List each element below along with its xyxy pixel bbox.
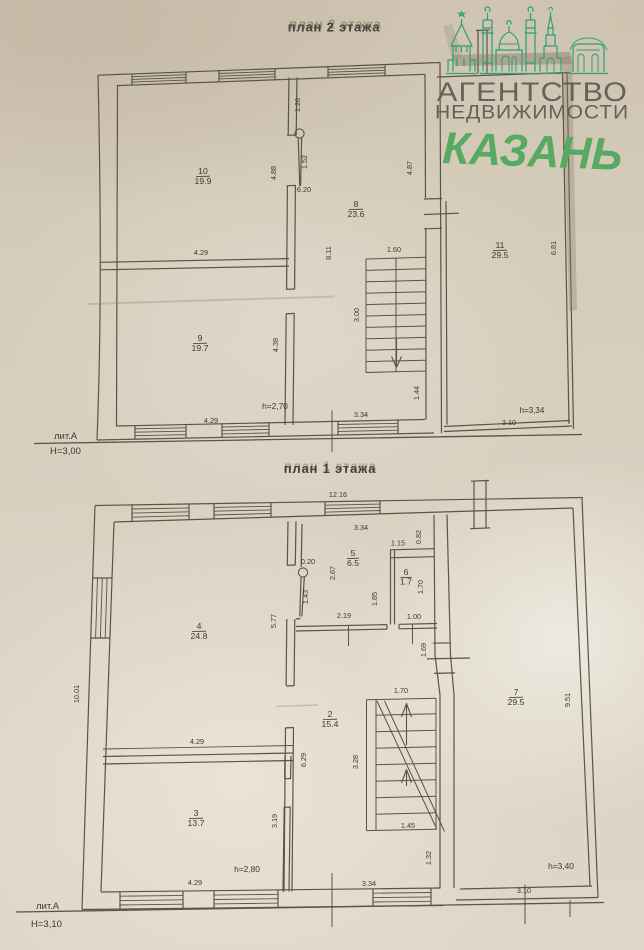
svg-text:h=3,34: h=3,34: [520, 406, 545, 415]
svg-text:5: 5: [351, 548, 356, 558]
svg-text:19.7: 19.7: [192, 343, 209, 353]
svg-text:0.82: 0.82: [414, 530, 423, 544]
svg-text:1.15: 1.15: [391, 539, 405, 548]
svg-text:3.34: 3.34: [362, 879, 376, 888]
svg-text:2.19: 2.19: [337, 611, 351, 620]
svg-text:лит.А: лит.А: [36, 901, 60, 912]
svg-text:4.29: 4.29: [188, 878, 202, 887]
svg-text:4.38: 4.38: [271, 338, 280, 352]
svg-text:1.69: 1.69: [419, 643, 428, 657]
svg-text:1.85: 1.85: [370, 592, 379, 606]
svg-text:4.87: 4.87: [405, 161, 414, 175]
svg-text:15.4: 15.4: [322, 719, 339, 729]
svg-text:1.52: 1.52: [300, 155, 309, 169]
svg-text:3.34: 3.34: [354, 410, 368, 419]
svg-text:3.00: 3.00: [352, 308, 361, 322]
svg-text:3.10: 3.10: [517, 886, 531, 895]
svg-text:4: 4: [197, 621, 202, 631]
svg-text:3: 3: [194, 808, 199, 818]
svg-text:4.29: 4.29: [190, 737, 204, 746]
svg-text:НЕДВИЖИМОСТИ: НЕДВИЖИМОСТИ: [435, 102, 629, 124]
svg-text:8: 8: [354, 199, 359, 209]
svg-text:h=2,70: h=2,70: [262, 401, 288, 411]
svg-text:4.88: 4.88: [269, 166, 278, 180]
svg-text:план 1 этажа: план 1 этажа: [284, 459, 376, 474]
svg-text:3.34: 3.34: [354, 523, 368, 532]
svg-text:29.5: 29.5: [508, 697, 525, 707]
svg-text:1.26: 1.26: [293, 98, 302, 112]
svg-text:8.11: 8.11: [324, 246, 333, 260]
svg-text:9.51: 9.51: [563, 693, 572, 707]
svg-text:2: 2: [328, 709, 333, 719]
svg-text:h=3,40: h=3,40: [548, 861, 574, 871]
svg-text:6.5: 6.5: [347, 558, 359, 568]
svg-text:1.7: 1.7: [400, 577, 412, 587]
svg-text:1.60: 1.60: [387, 245, 401, 254]
svg-text:6: 6: [404, 567, 409, 577]
svg-text:11: 11: [495, 240, 504, 250]
svg-text:13.7: 13.7: [188, 818, 205, 828]
svg-text:6.29: 6.29: [299, 753, 308, 767]
svg-text:3.10: 3.10: [502, 418, 516, 427]
svg-text:h=2,80: h=2,80: [234, 864, 260, 874]
svg-text:3.19: 3.19: [270, 814, 279, 828]
svg-text:план 2 этажа: план 2 этажа: [289, 17, 381, 32]
svg-text:4.29: 4.29: [194, 248, 208, 257]
svg-text:10: 10: [198, 166, 208, 176]
svg-text:лит.А: лит.А: [54, 431, 78, 442]
svg-text:10.01: 10.01: [72, 685, 81, 703]
svg-text:23.6: 23.6: [348, 209, 365, 219]
svg-text:1.00: 1.00: [407, 612, 421, 621]
svg-text:4.29: 4.29: [204, 416, 218, 425]
svg-text:1.32: 1.32: [424, 851, 433, 865]
svg-text:0.20: 0.20: [301, 557, 315, 566]
svg-text:1.45: 1.45: [401, 821, 415, 830]
svg-text:6.20: 6.20: [297, 185, 311, 194]
svg-text:5.77: 5.77: [269, 614, 278, 628]
svg-text:12.16: 12.16: [329, 490, 347, 499]
svg-text:1.44: 1.44: [412, 386, 421, 400]
svg-text:2.67: 2.67: [328, 566, 337, 580]
svg-text:6.81: 6.81: [549, 241, 558, 255]
svg-text:7: 7: [514, 687, 519, 697]
svg-text:Н=3,10: Н=3,10: [31, 919, 62, 930]
svg-text:1.43: 1.43: [301, 590, 310, 604]
svg-text:КАЗАНЬ: КАЗАНЬ: [442, 122, 624, 180]
svg-text:24.8: 24.8: [191, 631, 208, 641]
svg-text:19.9: 19.9: [195, 176, 212, 186]
svg-text:9: 9: [198, 333, 203, 343]
svg-text:Н=3,00: Н=3,00: [50, 446, 81, 457]
svg-text:29.5: 29.5: [492, 250, 509, 260]
svg-text:1.70: 1.70: [416, 580, 425, 594]
svg-text:1.70: 1.70: [394, 686, 408, 695]
svg-text:3.28: 3.28: [351, 755, 360, 769]
